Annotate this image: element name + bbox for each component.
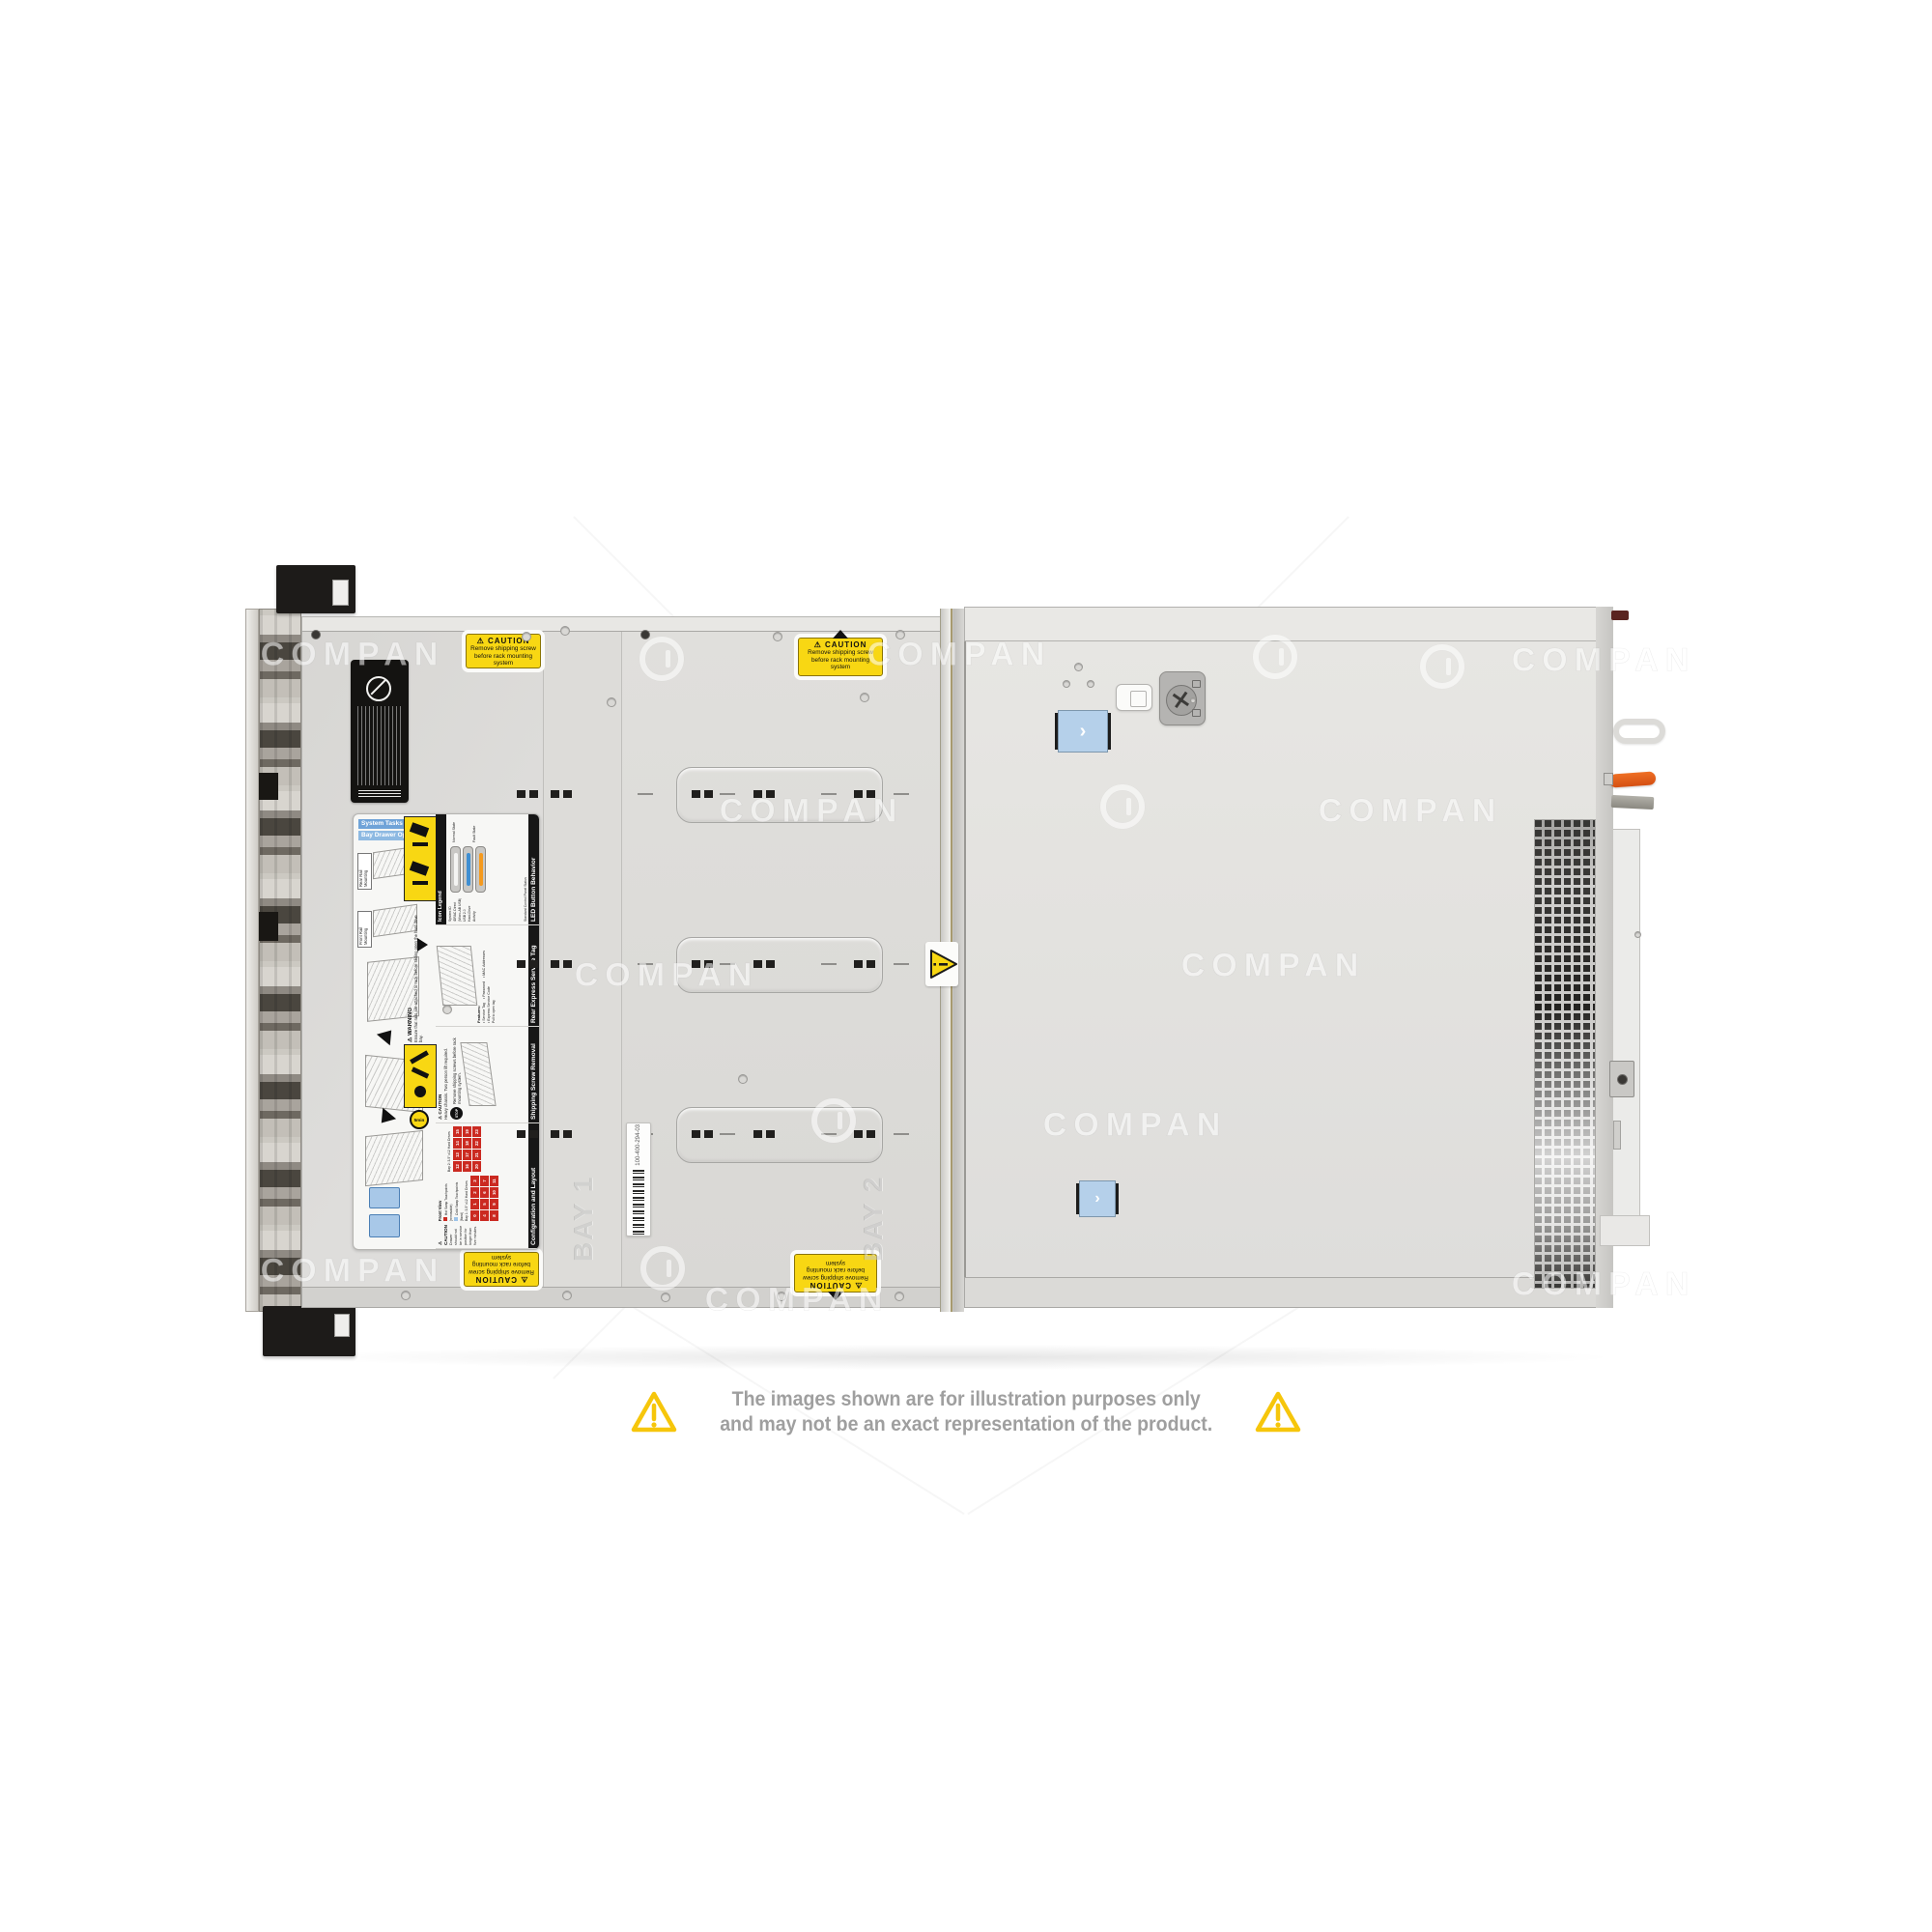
- chassis-screw: [607, 697, 616, 707]
- lid-bottom-band: [964, 1277, 1613, 1308]
- caution-sticker-top-mid: ⚠ CAUTION Remove shipping screw before r…: [798, 638, 883, 676]
- vent-slot-pair: [854, 1130, 875, 1138]
- front-latch-dark-1: [259, 773, 278, 800]
- regulatory-label: [351, 660, 409, 803]
- five-minute-timer-icon: 5min: [410, 1110, 429, 1129]
- drive-bay-cell: 8: [490, 1210, 498, 1221]
- diagram-close: [365, 1130, 423, 1186]
- drawer-icon-blue-2: [369, 1214, 400, 1237]
- stamped-dash: [821, 963, 837, 965]
- front-latch-dark-2: [259, 912, 278, 941]
- vent-slot-pair: [517, 790, 538, 798]
- warning-triangle-icon: [925, 942, 958, 986]
- tip-hazard-pictogram: [404, 1044, 437, 1108]
- drive-bay-cell: 22: [472, 1138, 481, 1149]
- led-bar-fault: [475, 846, 486, 893]
- disclaimer-text: The images shown are for illustration pu…: [720, 1387, 1212, 1437]
- padlock-open-icon: [1192, 680, 1201, 688]
- chassis-screw: [773, 632, 782, 641]
- drive-bay-cell: 1: [470, 1199, 479, 1209]
- drive-bay-cell: 12: [453, 1161, 462, 1172]
- drive-bay-cell: 17: [463, 1150, 471, 1160]
- tag-front-rail-mounting: Front Rail Mounting: [357, 911, 372, 948]
- chassis-screw: [860, 693, 869, 702]
- chassis-screw: [442, 1005, 452, 1014]
- embossed-bay2: BAY 2: [858, 1175, 904, 1262]
- stamped-dash: [638, 963, 653, 965]
- drive-bay-cell: 9: [490, 1199, 498, 1209]
- led-header-bar: LED Button Behavior: [528, 814, 539, 924]
- chassis-screw: [640, 630, 650, 639]
- stamped-dash: [720, 1133, 735, 1135]
- warning-icon: ⚠: [477, 637, 485, 645]
- regulatory-mark-circle: [366, 676, 391, 701]
- drive-bay-cell: 6: [480, 1187, 489, 1198]
- disclaimer-warning-icon-right: [1254, 1389, 1302, 1435]
- drive-bay-cell: 5: [480, 1199, 489, 1209]
- rear-foot: [1600, 1215, 1650, 1246]
- arrow-icon: [375, 1108, 396, 1129]
- barcode-label: 100-400-294-03: [626, 1122, 651, 1236]
- sticker-pointer: [833, 630, 848, 639]
- section-shipping-screw-removal: ⚠ CAUTION Heavy chassis. Two person lift…: [436, 1027, 539, 1123]
- chassis-screw: [311, 630, 321, 639]
- rear-tag-header-bar: Rear Express Service Tag: [528, 925, 539, 1026]
- embossed-bay1: BAY 1: [568, 1175, 614, 1262]
- vent-slot-pair: [692, 960, 713, 968]
- vent-slot-pair: [551, 1130, 572, 1138]
- rear-screw-dark: [1611, 611, 1629, 620]
- front-drive-handles: [259, 609, 301, 1312]
- drive-bay-cell: 7: [480, 1176, 489, 1186]
- drive-bay-cell: 18: [463, 1138, 471, 1149]
- drive-bay-cell: 0: [470, 1210, 479, 1221]
- service-instruction-label: System Tasks Bay Drawer Operation Rear R…: [353, 813, 540, 1250]
- stamped-dash: [821, 793, 837, 795]
- warning-icon: ⚠: [438, 1116, 442, 1120]
- rear-vent-grid: [1534, 819, 1596, 1289]
- arrow-icon: [377, 1025, 398, 1046]
- chassis-screw: [522, 632, 531, 641]
- config-header-bar: Configuration and Layout: [528, 1123, 539, 1248]
- regulatory-barcode: [358, 789, 401, 797]
- warning-icon: ⚠: [520, 1275, 527, 1284]
- drive-bay-cell: 4: [480, 1210, 489, 1221]
- lid-keylock: [1159, 671, 1206, 725]
- stamped-dash: [894, 1133, 909, 1135]
- hot-swap-legend-swatch: [443, 1217, 447, 1221]
- disclaimer-warning-icon-left: [630, 1389, 678, 1435]
- warning-icon: ⚠: [854, 1281, 862, 1290]
- cold-swap-legend-swatch: [454, 1217, 458, 1221]
- drive-bay-cell: 16: [463, 1161, 471, 1172]
- disclaimer-banner: The images shown are for illustration pu…: [0, 1387, 1932, 1437]
- stamped-dash: [821, 1133, 837, 1135]
- label-right-sections: Icon Legend System ID iDRAC Direct (Micr…: [436, 814, 539, 1249]
- icon-legend-header: Icon Legend: [436, 814, 446, 924]
- vent-slot-pair: [692, 790, 713, 798]
- drive-bay-cell: 14: [453, 1138, 462, 1149]
- lid-screw-2: [1063, 680, 1070, 688]
- drive-bay-cell: 23: [472, 1126, 481, 1137]
- drive-bay-cell: 10: [490, 1187, 498, 1198]
- chassis-screw: [401, 1291, 411, 1300]
- stamped-dash: [720, 963, 735, 965]
- chassis-screw: [560, 626, 570, 636]
- chassis-screw: [562, 1291, 572, 1300]
- rear-release-lever-orange: [1609, 771, 1657, 787]
- vent-slot-pair: [551, 790, 572, 798]
- rack-ear-bottom-thumbscrew: [334, 1314, 350, 1337]
- rear-latch-metal: [1611, 795, 1655, 810]
- lid-right-wall: [1596, 607, 1613, 1308]
- label-warning-column: ⚠ WARNING Ensure that rails are attached…: [408, 907, 437, 1042]
- tag-rear-rail-mounting: Rear Rail Mounting: [357, 853, 372, 890]
- stamped-dash: [894, 793, 909, 795]
- drive-bay-cell: 19: [463, 1126, 471, 1137]
- bay1-drive-grid: 01234567891011: [470, 1176, 498, 1221]
- server-shadow: [290, 1345, 1623, 1370]
- regulatory-microtext: [357, 706, 402, 785]
- rear-small-tab: [1613, 1121, 1621, 1150]
- shipping-header-bar: Shipping Screw Removal: [528, 1027, 539, 1122]
- chassis-screw: [895, 1292, 904, 1301]
- hinge-warning-sticker: [925, 942, 958, 986]
- front-bezel-edge: [245, 609, 259, 1312]
- led-bar-blue: [463, 846, 473, 893]
- barcode-stripes: [633, 1168, 644, 1235]
- stamped-dash: [638, 793, 653, 795]
- warning-icon: ⚠: [438, 1241, 442, 1245]
- product-photo-scene: ⚠ CAUTION Remove shipping screw before r…: [0, 0, 1932, 1932]
- stamped-dash: [720, 793, 735, 795]
- sticker-pointer: [828, 1292, 843, 1300]
- chassis-screw: [661, 1293, 670, 1302]
- drawer-icon-blue-1: [369, 1187, 400, 1208]
- stop-icon: STOP: [450, 1107, 463, 1120]
- lid-top-band: [964, 607, 1613, 641]
- drive-bay-cell: 15: [453, 1126, 462, 1137]
- chassis-screw: [895, 630, 905, 639]
- section-configuration-layout: ⚠ CAUTION Drawer should not be in servic…: [436, 1123, 539, 1249]
- caution-sticker-bottom-left: ⚠ CAUTION Remove shipping screw before r…: [464, 1252, 539, 1287]
- drive-bay-cell: 3: [470, 1176, 479, 1186]
- bulge-screw: [1634, 931, 1641, 938]
- stamped-dash: [894, 963, 909, 965]
- led-bar-normal: [450, 846, 461, 893]
- rear-mid-latch: [1609, 1061, 1634, 1097]
- rack-ear-top-thumbscrew: [332, 580, 349, 606]
- lid-release-slider: [1116, 684, 1152, 711]
- pinch-hazard-pictogram: [404, 816, 437, 901]
- drive-bay-cell: 2: [470, 1187, 479, 1198]
- vent-slot-pair: [753, 790, 775, 798]
- lid-screw-3: [1087, 680, 1094, 688]
- drive-bay-cell: 21: [472, 1150, 481, 1160]
- chassis-screw: [777, 1292, 786, 1301]
- rear-lever-clip: [1604, 773, 1613, 785]
- padlock-closed-icon: [1192, 709, 1201, 717]
- lid-latch-button-top: ›: [1058, 710, 1108, 753]
- rear-wall-bulge: [1613, 829, 1640, 1217]
- drive-bay-cell: 13: [453, 1150, 462, 1160]
- drive-bay-cell: 11: [490, 1176, 498, 1186]
- vent-slot-pair: [854, 790, 875, 798]
- vent-slot-pair: [753, 960, 775, 968]
- drive-bay-cell: 20: [472, 1161, 481, 1172]
- section-led-button-behavior: Icon Legend System ID iDRAC Direct (Micr…: [436, 814, 539, 925]
- vent-slot-pair: [517, 1130, 538, 1138]
- vent-slot-pair: [854, 960, 875, 968]
- lid-latch-button-bottom: ›: [1079, 1180, 1116, 1217]
- bay2-drive-grid: 121314151617181920212223: [453, 1126, 481, 1172]
- rear-ring-handle: [1613, 719, 1665, 744]
- lid-screw-1: [1074, 663, 1083, 671]
- barcode-text: 100-400-294-03: [636, 1124, 641, 1166]
- chassis-screw: [738, 1074, 748, 1084]
- vent-slot-pair: [753, 1130, 775, 1138]
- vent-slot-pair: [517, 960, 538, 968]
- warning-icon: ⚠: [814, 640, 822, 649]
- vent-slot-pair: [692, 1130, 713, 1138]
- vent-slot-pair: [551, 960, 572, 968]
